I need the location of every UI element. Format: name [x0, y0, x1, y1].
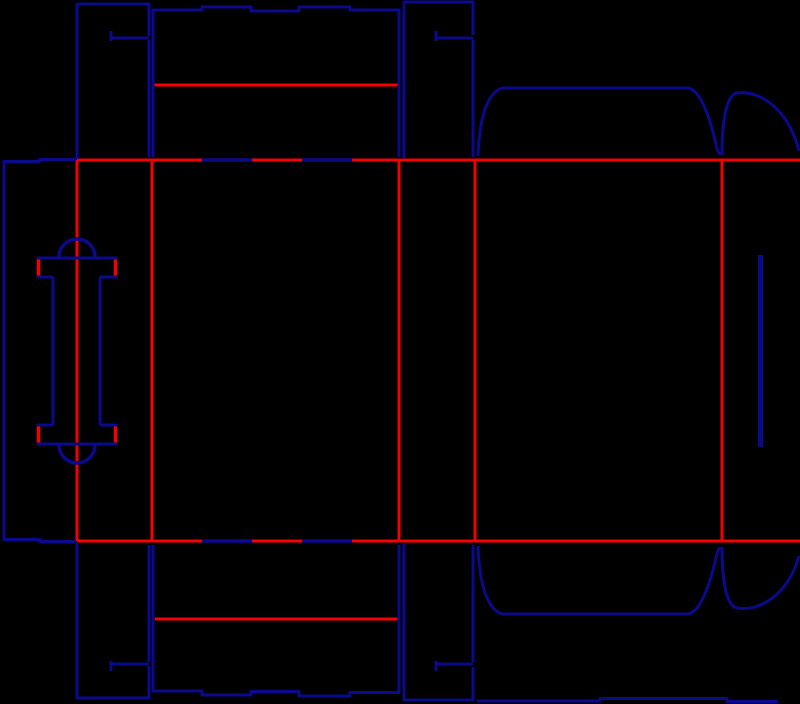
- crease-lines-layer: [39, 85, 800, 619]
- strip2-top-outline: [404, 2, 473, 158]
- right-bottom-dust-flap: [722, 547, 799, 609]
- strip1-bottom-outline: [77, 543, 149, 698]
- glue-panel-outline: [4, 160, 76, 542]
- strip1-top-outline: [77, 4, 149, 159]
- dieline-canvas: [0, 0, 800, 704]
- back-top-dust-flap: [478, 88, 720, 156]
- top-tuck-flap-outline: [153, 7, 399, 157]
- box-dieline-diagram: [0, 0, 800, 704]
- cut-lines-layer: [4, 2, 799, 702]
- bottom-right-panel-edge: [477, 699, 778, 702]
- strip2-bottom-outline: [404, 544, 473, 700]
- back-bottom-dust-flap: [478, 546, 720, 614]
- right-top-dust-flap: [722, 93, 799, 155]
